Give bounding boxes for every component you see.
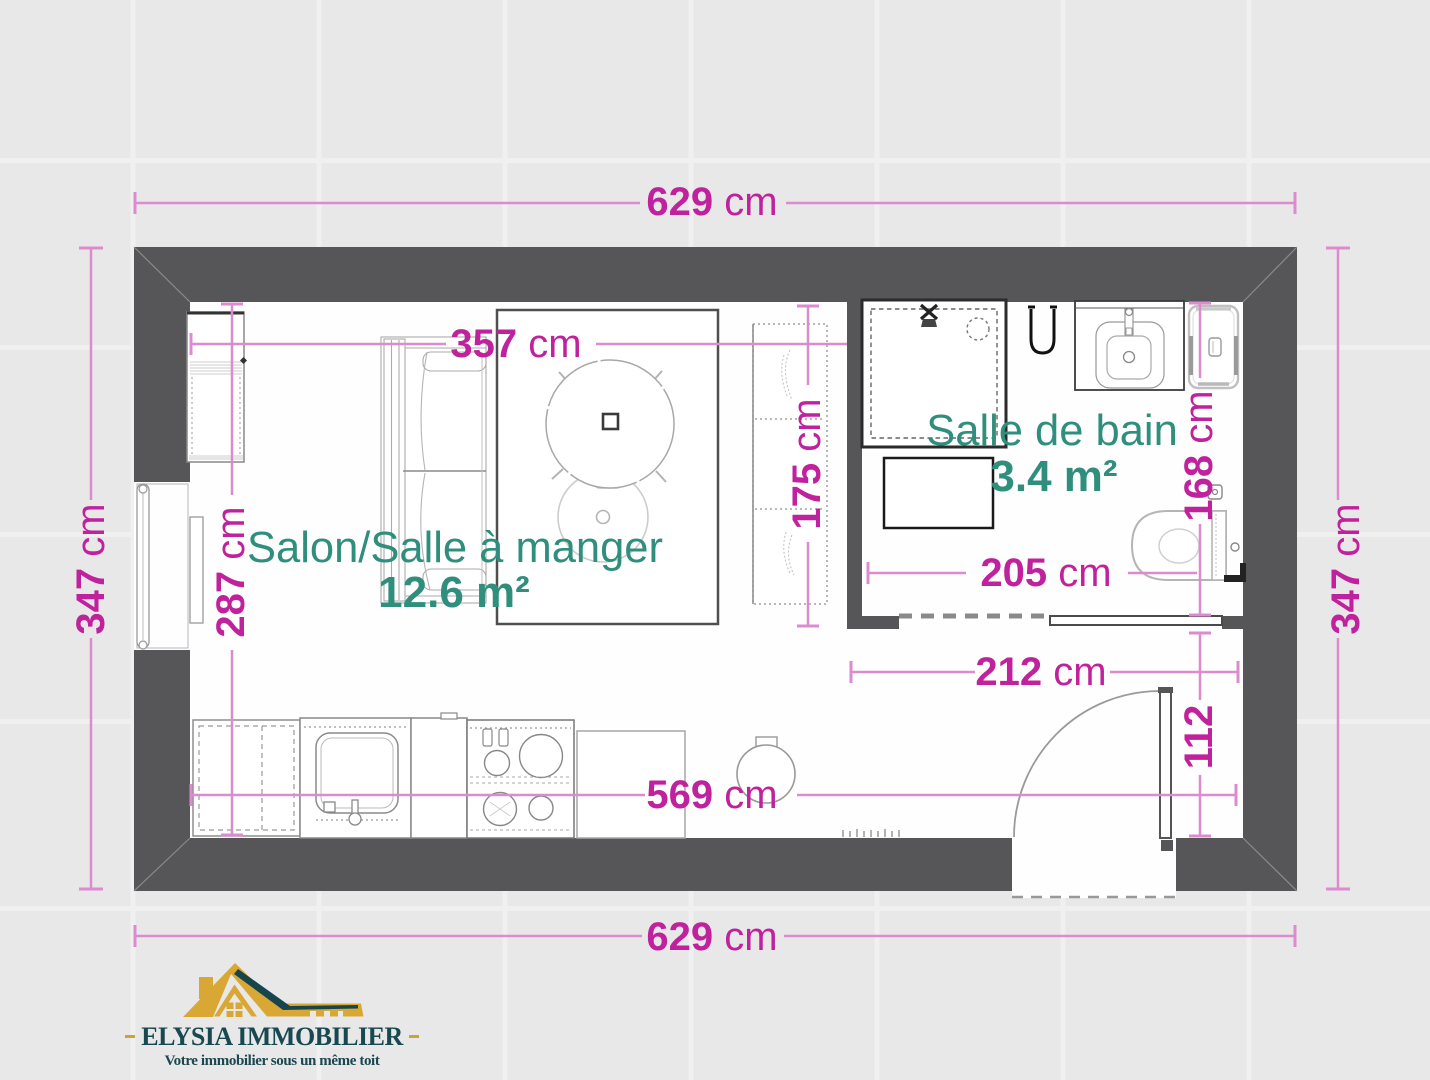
svg-text:347 cm: 347 cm (69, 503, 113, 634)
svg-text:112: 112 (1177, 705, 1221, 770)
svg-text:569 cm: 569 cm (646, 773, 777, 817)
svg-text:212 cm: 212 cm (975, 650, 1106, 694)
svg-text:357 cm: 357 cm (450, 322, 581, 366)
svg-text:629 cm: 629 cm (646, 915, 777, 959)
svg-text:3.4 m²: 3.4 m² (990, 452, 1117, 501)
svg-text:ELYSIA IMMOBILIER: ELYSIA IMMOBILIER (141, 1022, 403, 1051)
svg-text:Votre immobilier sous un même: Votre immobilier sous un même toit (165, 1053, 380, 1069)
svg-text:175 cm: 175 cm (785, 398, 829, 529)
svg-text:168 cm: 168 cm (1177, 390, 1221, 521)
svg-text:12.6 m²: 12.6 m² (378, 568, 530, 617)
svg-text:347 cm: 347 cm (1324, 503, 1368, 634)
svg-text:Salle de bain: Salle de bain (926, 407, 1178, 455)
svg-text:629 cm: 629 cm (646, 180, 777, 224)
svg-text:Salon/Salle à manger: Salon/Salle à manger (247, 524, 663, 572)
svg-text:205 cm: 205 cm (980, 551, 1111, 595)
